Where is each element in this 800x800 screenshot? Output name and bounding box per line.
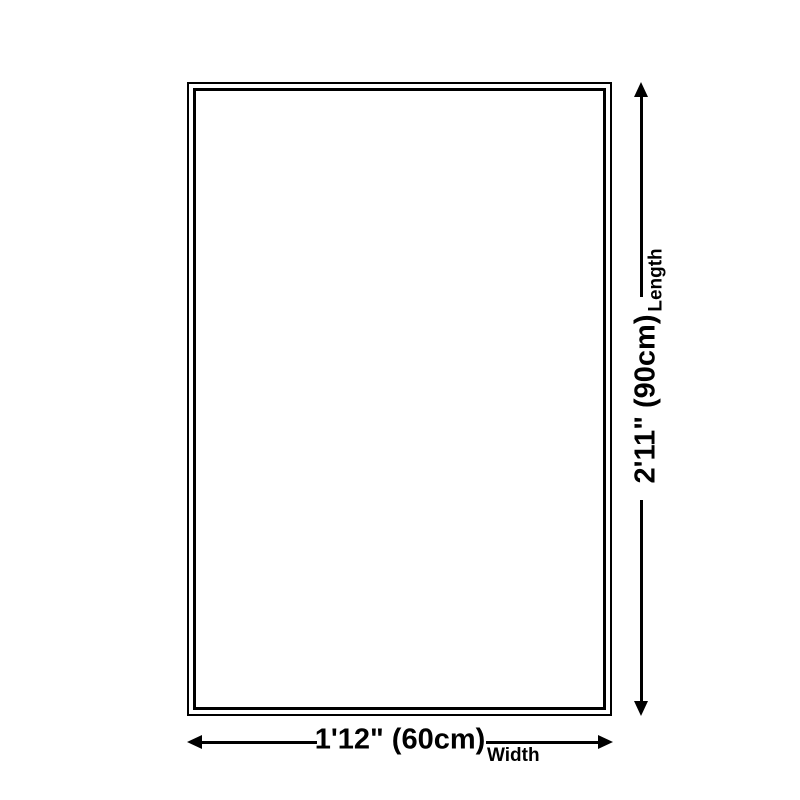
width-label: Width [487,746,540,765]
width-dimension-line-right [486,741,599,744]
rug-outline-inner-border [193,88,606,710]
diagram-canvas: Length 2'11" (90cm) 1'12" (60cm) Width [0,0,800,800]
length-value: 2'11" (90cm) [632,315,661,484]
rug-outline [187,82,612,716]
length-label: Length [647,248,666,311]
arrow-left-icon [187,735,202,749]
arrow-down-icon [634,701,648,716]
length-dimension-line-top [640,95,643,297]
width-value: 1'12" (60cm) [315,726,486,755]
arrow-right-icon [598,735,613,749]
length-dimension-line-bottom [640,500,643,702]
width-dimension-line-left [201,741,317,744]
